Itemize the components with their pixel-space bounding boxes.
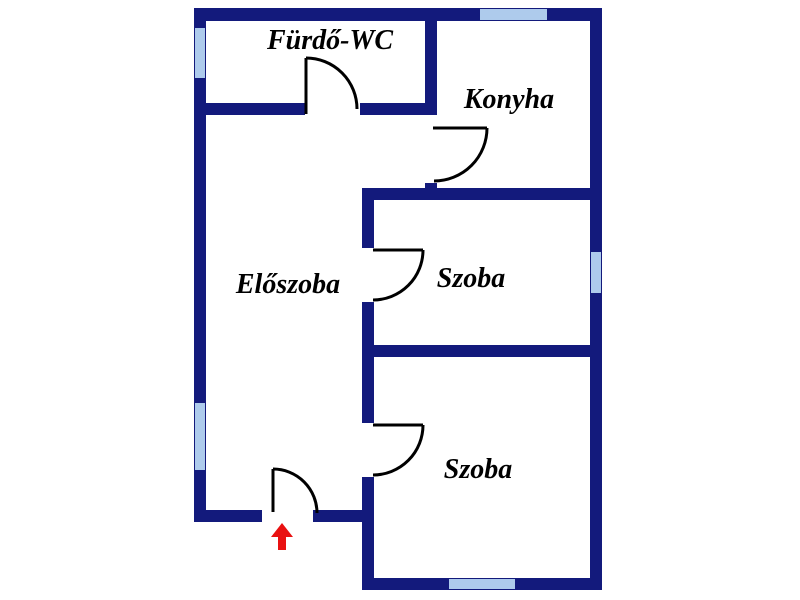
wall-konyha-left-upper [425, 8, 437, 115]
window-bottom-szoba2 [449, 579, 515, 589]
window-left-upper [195, 28, 205, 78]
wall-szoba1-top [362, 188, 602, 200]
window-right-szoba1 [591, 252, 601, 293]
room-label-szoba-1: Szoba [437, 263, 505, 294]
wall-eloszoba-bottom-right [313, 510, 374, 522]
wall-szoba-divider [362, 345, 602, 357]
wall-eloszoba-bottom-left [194, 510, 262, 522]
wall-furdo-bottom-left [194, 103, 305, 115]
room-label-eloszoba: Előszoba [235, 269, 340, 300]
window-left-lower [195, 403, 205, 470]
room-label-furdo-wc: Fürdő-WC [266, 25, 393, 56]
floor-plan-canvas: Fürdő-WCKonyhaElőszobaSzobaSzoba [0, 0, 800, 600]
plan-background [0, 0, 800, 600]
wall-middle-lower [362, 477, 374, 590]
wall-middle-upper [362, 188, 374, 248]
floor-plan: Fürdő-WCKonyhaElőszobaSzobaSzoba [0, 0, 800, 600]
wall-middle-mid [362, 302, 374, 423]
window-top-konyha [480, 9, 547, 20]
room-label-szoba-2: Szoba [444, 454, 512, 485]
room-label-konyha: Konyha [463, 84, 554, 115]
wall-right [590, 8, 602, 590]
